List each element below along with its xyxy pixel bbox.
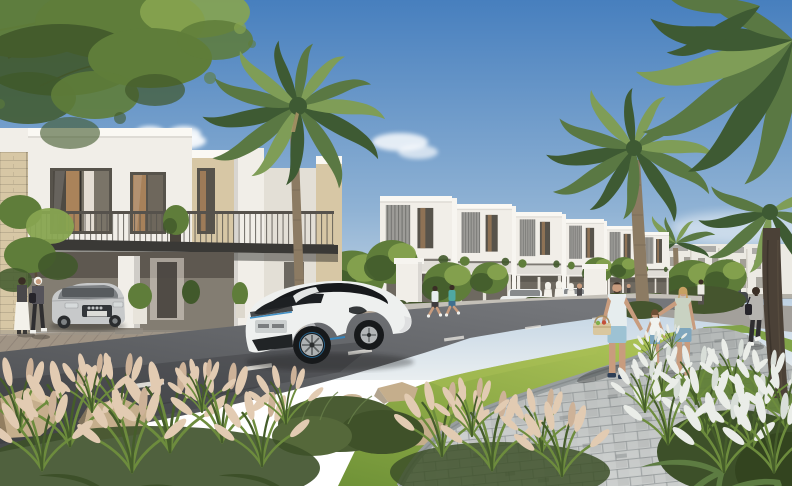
- parked-silver-car: [50, 283, 126, 331]
- scene-canvas: [0, 0, 792, 486]
- rendered-street-scene: [0, 0, 792, 486]
